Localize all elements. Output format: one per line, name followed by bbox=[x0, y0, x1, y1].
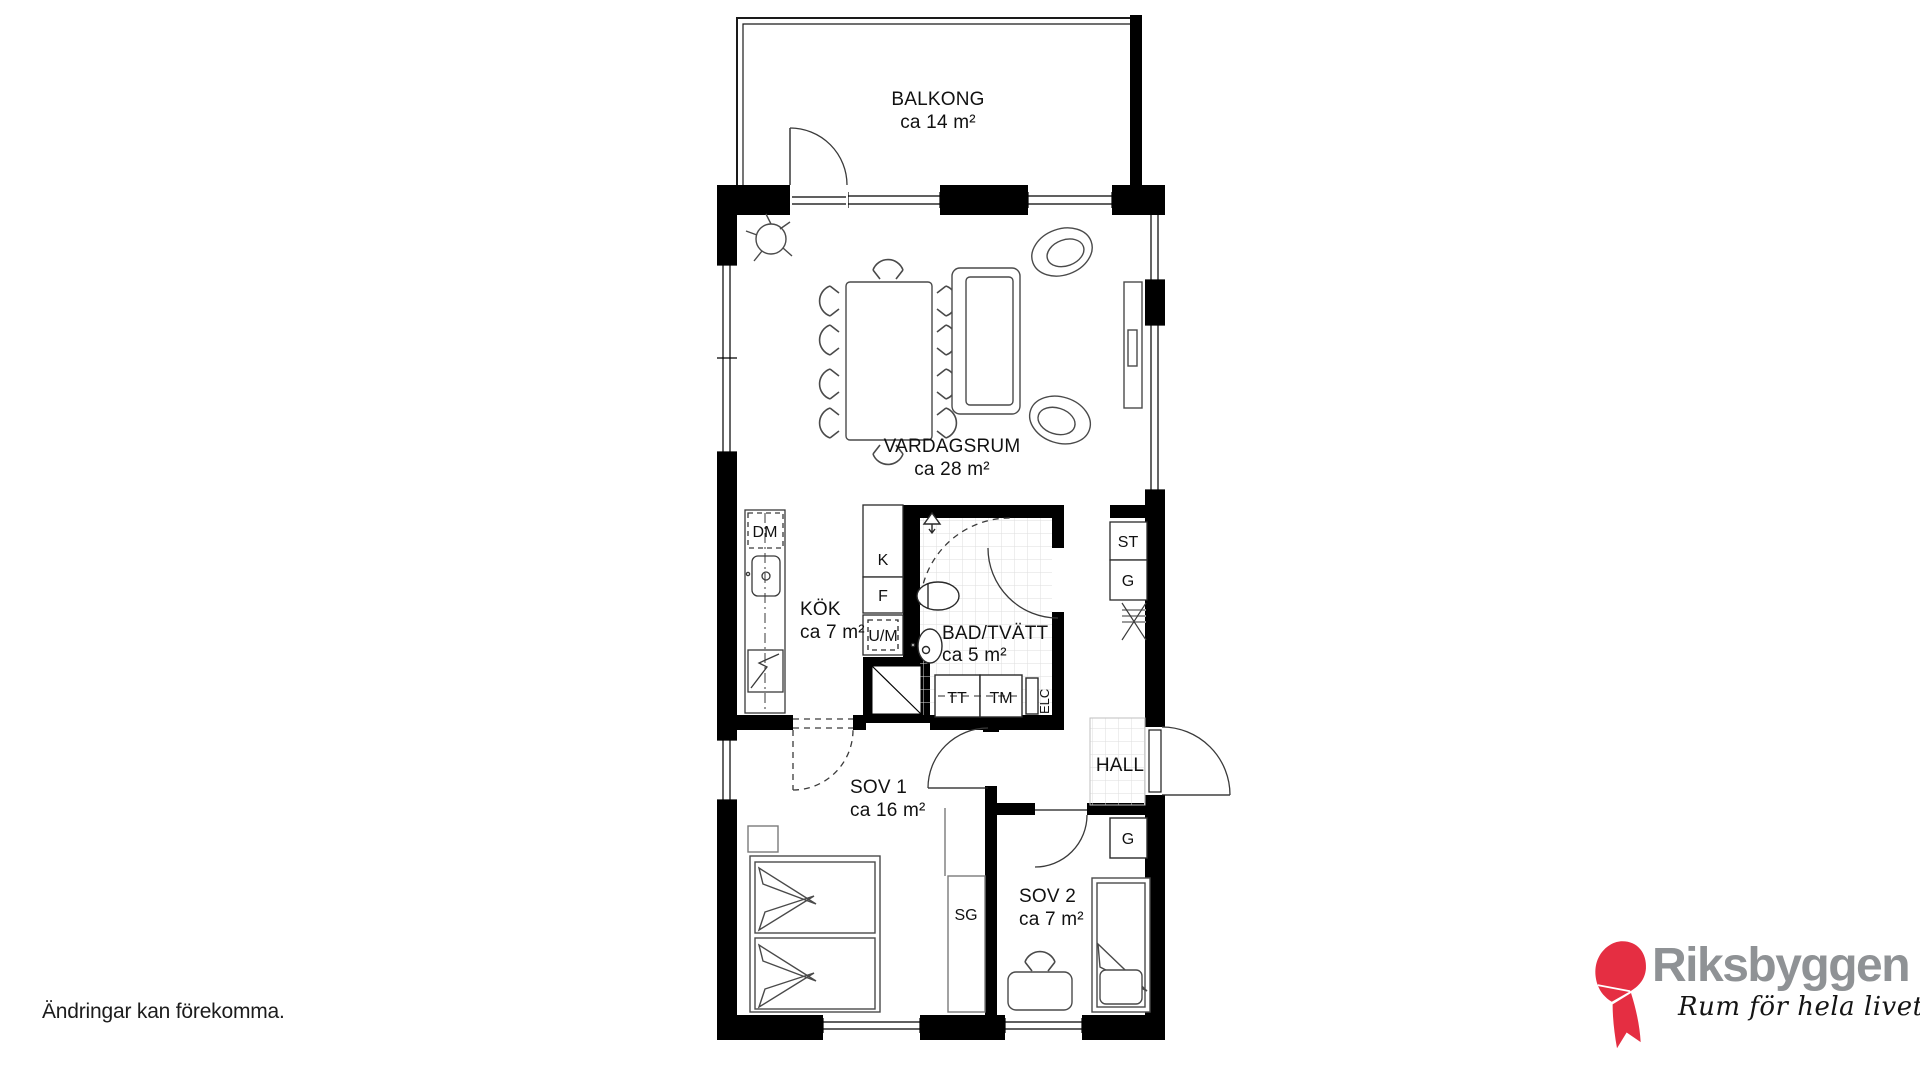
label-bad-tvatt-area: ca 5 m² bbox=[942, 645, 1007, 666]
plant bbox=[746, 214, 792, 261]
toilet bbox=[917, 582, 959, 610]
floor-plan: BALKONG ca 14 m² VARDAGSRUM ca 28 m² KÖK… bbox=[0, 0, 1920, 1080]
label-sov1: SOV 1 bbox=[850, 777, 907, 798]
riksbyggen-logo: Riksbyggen Rum för hela livet bbox=[1586, 934, 1896, 1052]
double-bed bbox=[750, 856, 880, 1012]
lounge-chair-1 bbox=[1025, 220, 1099, 284]
window-right-2 bbox=[1145, 325, 1165, 490]
label-kok: KÖK bbox=[800, 599, 841, 620]
sofa bbox=[952, 268, 1020, 414]
shaft bbox=[863, 657, 930, 723]
bedroom1-furniture bbox=[748, 808, 985, 1012]
label-f: F bbox=[878, 588, 888, 605]
desk bbox=[1008, 952, 1072, 1010]
label-tm: TM bbox=[989, 690, 1012, 707]
tv-bench bbox=[1124, 282, 1142, 408]
brand-tagline: Rum för hela livet bbox=[1678, 992, 1920, 1022]
label-sov2: SOV 2 bbox=[1019, 886, 1076, 907]
label-vardagsrum: VARDAGSRUM bbox=[884, 436, 1021, 457]
bedroom2-door bbox=[1035, 810, 1087, 867]
floorplan-page: BALKONG ca 14 m² VARDAGSRUM ca 28 m² KÖK… bbox=[0, 0, 1920, 1080]
label-dm: DM bbox=[753, 524, 778, 541]
label-st: ST bbox=[1118, 534, 1139, 551]
window-left-2 bbox=[717, 740, 737, 800]
label-kok-area: ca 7 m² bbox=[800, 622, 865, 643]
label-k: K bbox=[878, 552, 889, 569]
label-g-sov2: G bbox=[1122, 831, 1134, 848]
label-um: U/M bbox=[868, 628, 897, 645]
entrance-door bbox=[1149, 727, 1230, 795]
brand-name: Riksbyggen bbox=[1652, 942, 1920, 990]
sg-closet bbox=[948, 876, 985, 1012]
disclaimer-text: Ändringar kan förekomma. bbox=[42, 1000, 285, 1024]
label-elc: ELC bbox=[1037, 689, 1052, 714]
label-g-hall: G bbox=[1122, 573, 1134, 590]
balcony-door-threshold bbox=[790, 185, 848, 215]
dining-table bbox=[820, 260, 957, 465]
window-left-1 bbox=[717, 265, 737, 452]
window-bottom-2 bbox=[1005, 1015, 1082, 1040]
nightstand bbox=[748, 826, 778, 852]
label-sov2-area: ca 7 m² bbox=[1019, 909, 1084, 930]
label-bad-tvatt: BAD/TVÄTT bbox=[942, 623, 1049, 644]
label-balkong-area: ca 14 m² bbox=[900, 112, 976, 133]
window-bottom-1 bbox=[823, 1015, 920, 1040]
single-bed bbox=[1092, 878, 1150, 1012]
window-top-2 bbox=[1028, 185, 1112, 215]
label-vardagsrum-area: ca 28 m² bbox=[914, 459, 990, 480]
label-sov1-area: ca 16 m² bbox=[850, 800, 926, 821]
bedroom1-door bbox=[928, 728, 988, 788]
label-balkong: BALKONG bbox=[891, 89, 984, 110]
kitchen-opening-dashed bbox=[793, 719, 853, 790]
radiator bbox=[1122, 603, 1146, 640]
label-tt: TT bbox=[947, 690, 967, 707]
riksbyggen-logo-icon bbox=[1586, 936, 1648, 1055]
balcony-door bbox=[790, 128, 847, 185]
living-room-furniture bbox=[746, 214, 1142, 464]
window-top-1 bbox=[848, 185, 940, 215]
label-hall: HALL bbox=[1096, 755, 1144, 776]
window-right-1 bbox=[1145, 215, 1165, 280]
lounge-chair-2 bbox=[1023, 389, 1096, 452]
label-sg: SG bbox=[954, 907, 977, 924]
